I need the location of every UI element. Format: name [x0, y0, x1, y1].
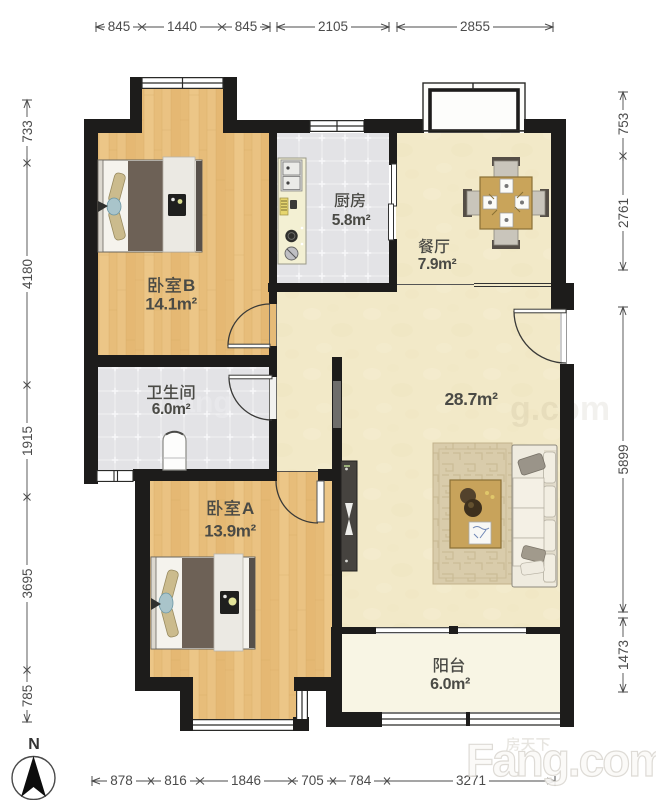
svg-text:2761: 2761: [616, 198, 631, 228]
svg-text:845: 845: [235, 19, 258, 34]
svg-text:1440: 1440: [167, 19, 197, 34]
svg-text:2105: 2105: [318, 19, 348, 34]
svg-text:7.9m²: 7.9m²: [418, 256, 457, 273]
svg-text:Fang.com: Fang.com: [466, 734, 656, 786]
svg-text:B: B: [183, 276, 195, 295]
svg-text:6.0m²: 6.0m²: [430, 676, 470, 693]
svg-text:845: 845: [108, 19, 131, 34]
svg-text:705: 705: [301, 773, 324, 788]
svg-text:1915: 1915: [20, 426, 35, 456]
svg-text:5.8m²: 5.8m²: [332, 212, 371, 229]
svg-text:753: 753: [616, 113, 631, 136]
svg-text:1846: 1846: [231, 773, 261, 788]
svg-text:A: A: [242, 499, 254, 518]
svg-text:14.1m²: 14.1m²: [145, 294, 197, 313]
svg-text:N: N: [28, 736, 40, 753]
svg-text:2855: 2855: [460, 19, 490, 34]
svg-text:784: 784: [349, 773, 372, 788]
svg-text:28.7m²: 28.7m²: [444, 389, 498, 409]
svg-text:13.9m²: 13.9m²: [204, 521, 256, 540]
svg-text:733: 733: [20, 120, 35, 143]
svg-text:1473: 1473: [616, 640, 631, 670]
svg-text:816: 816: [164, 773, 187, 788]
svg-text:3695: 3695: [20, 568, 35, 598]
svg-text:878: 878: [110, 773, 133, 788]
svg-text:4180: 4180: [20, 259, 35, 289]
svg-text:785: 785: [20, 685, 35, 708]
svg-text:6.0m²: 6.0m²: [152, 401, 191, 418]
svg-text:5899: 5899: [616, 444, 631, 474]
